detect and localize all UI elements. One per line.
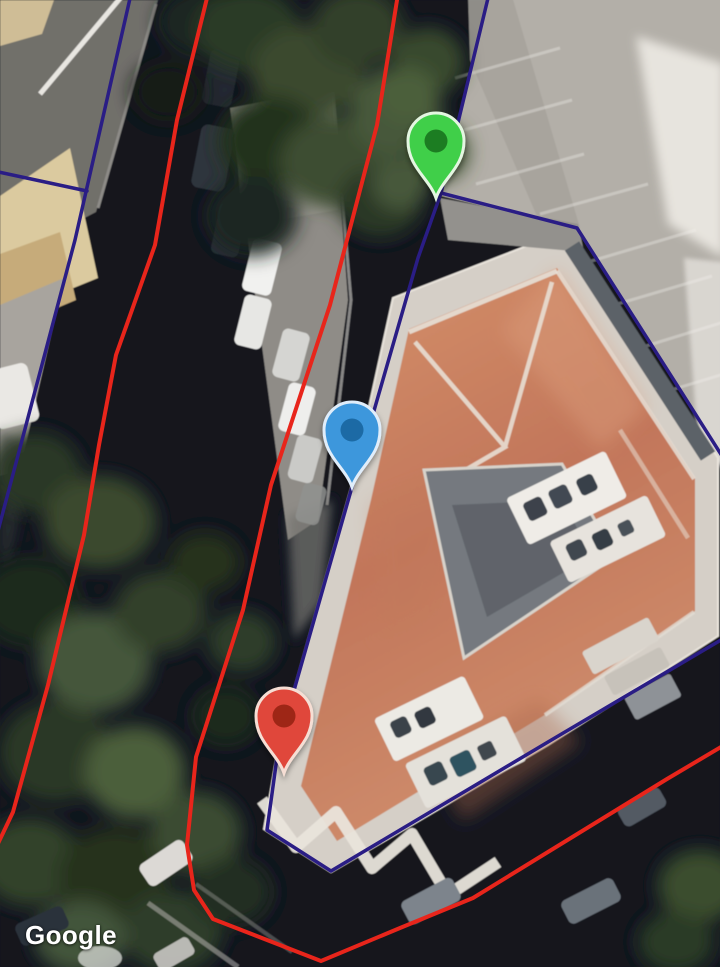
google-watermark: Google bbox=[25, 920, 117, 951]
map-canvas[interactable] bbox=[0, 0, 720, 967]
map-view[interactable]: Google bbox=[0, 0, 720, 967]
green-marker-dot bbox=[425, 130, 448, 153]
red-marker-dot bbox=[273, 705, 296, 728]
satellite-imagery bbox=[0, 0, 720, 967]
blue-marker-dot bbox=[341, 419, 364, 442]
